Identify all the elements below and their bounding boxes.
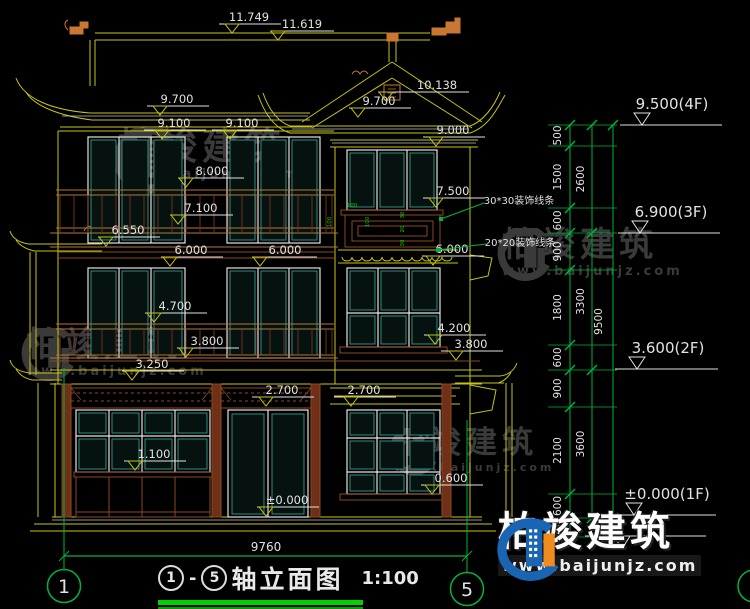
elevation-mark-value: 7.500 [437, 184, 470, 198]
dim-chain-value: 3300 [575, 288, 587, 315]
elevation-mark-triangle [344, 397, 358, 406]
dim-chain-value: 2100 [552, 437, 564, 464]
elevation-mark-value: 7.100 [185, 201, 218, 215]
elevation-mark-triangle [351, 108, 365, 117]
elevation-mark-value: 6.000 [436, 242, 469, 256]
elevation-mark-value: 1.100 [138, 447, 171, 461]
elevation-mark-triangle [449, 351, 463, 360]
floor-band-2f [50, 361, 482, 384]
elevation-mark-triangle [153, 106, 167, 115]
axis-bubble-end: 5 [201, 565, 227, 591]
dim-chain-value: 500 [552, 125, 564, 145]
elevation-mark-value: 9.000 [437, 123, 470, 137]
elevation-mark-value: 9.700 [161, 92, 194, 106]
dim-chain-value: 2600 [575, 166, 587, 193]
callout-leader [441, 203, 484, 219]
elevation-mark-value: 0.600 [435, 471, 468, 485]
grid-bubble-1-label: 1 [58, 576, 70, 598]
elevation-mark-value: 10.138 [417, 78, 457, 92]
title-block: 1 - 5 轴立面图 1:100 [158, 560, 419, 609]
elevation-mark-triangle [225, 24, 239, 33]
roof-ridge [95, 33, 430, 40]
level-value: 6.900(3F) [635, 203, 708, 221]
level-triangle [634, 113, 650, 125]
window-lower-panels [76, 477, 210, 517]
callout-label: 30*30装饰线条 [484, 194, 554, 207]
dimension-chains: 5001500600900180060090021006004502600330… [548, 120, 618, 542]
elevation-mark-triangle [271, 31, 285, 40]
title-underline [158, 600, 363, 605]
drawing-scale: 1:100 [362, 568, 419, 589]
grid-bubble-5-label: 5 [461, 579, 473, 601]
level-triangle [632, 221, 648, 233]
axis-bubble-start: 1 [158, 565, 184, 591]
gable-window-sill [341, 210, 443, 215]
level-value: 9.500(4F) [636, 95, 709, 113]
panel-dim-value: 30 [400, 211, 406, 218]
floor-level-markers: 9.500(4F)6.900(3F)3.600(2F)±0.000(1F) [612, 95, 722, 515]
elevation-mark-value: 3.250 [136, 357, 169, 371]
overall-dimension: 9760 [59, 540, 472, 562]
elevation-mark-value: 9.700 [363, 94, 396, 108]
elevation-mark-value: 6.000 [269, 243, 302, 257]
door-leaf-left [232, 414, 264, 514]
drawing-title-text: 轴立面图 [231, 560, 343, 596]
axis-separator: - [189, 568, 196, 589]
elevation-mark-value: 2.700 [266, 383, 299, 397]
gable-finial [387, 33, 398, 41]
level-triangle [629, 357, 645, 369]
callout-leader-dot [439, 217, 443, 221]
elevation-mark-value: 11.619 [282, 17, 322, 31]
callout-leader-dot [436, 248, 440, 252]
dim-chain-value: 9500 [593, 308, 605, 335]
level-value: 3.600(2F) [632, 339, 705, 357]
porch-eave-right [455, 363, 517, 383]
elevation-mark-value: 9.100 [158, 116, 191, 130]
panel-dim-value: 100 [347, 203, 358, 209]
elevation-mark-value: 2.700 [348, 383, 381, 397]
company-logo: 柏竣建筑 www.baijunjz.com [492, 512, 701, 576]
tile-scallops [342, 257, 452, 261]
elevation-mark-value: 11.749 [229, 10, 269, 24]
dim-chain-value: 1500 [552, 164, 564, 191]
panel-dim-value: 100 [365, 216, 371, 227]
level-value: ±0.000(1F) [624, 485, 709, 503]
panel-dim-value: 20 [400, 225, 406, 232]
dim-chain-value: 1800 [552, 294, 564, 321]
ridge-ornament-right [432, 28, 446, 35]
dim-chain-value: 3600 [575, 431, 587, 458]
decorative-trim-panel [341, 210, 443, 247]
elevation-mark-value: 9.100 [226, 116, 259, 130]
grid-bubble-partial [738, 570, 750, 602]
elevation-mark-value: 6.550 [112, 223, 145, 237]
elevation-mark-value: ±0.000 [266, 493, 309, 507]
panel-dim-value: 100 [327, 216, 333, 227]
overall-dim-label: 9760 [251, 540, 282, 554]
dim-chain-value: 600 [552, 347, 564, 367]
callout-label: 20*20装饰线条 [485, 236, 555, 249]
dim-chain-value: 600 [552, 210, 564, 230]
elevation-mark-value: 6.000 [175, 243, 208, 257]
elevation-mark-triangle [429, 137, 443, 146]
panel-dim-value: 30 [400, 239, 406, 246]
elevation-mark-value: 4.200 [438, 321, 471, 335]
company-logo-icon [492, 512, 564, 596]
elevation-mark-triangle [125, 371, 139, 380]
cad-canvas: 柏竣建筑 www.baijunjz.com 柏竣建筑 www.baijunjz.… [0, 0, 750, 609]
elevation-mark-value: 8.000 [196, 164, 229, 178]
elevation-mark-value: 3.800 [455, 337, 488, 351]
elevation-mark-value: 3.800 [191, 334, 224, 348]
dim-chain-value: 900 [552, 378, 564, 398]
elevation-mark-value: 4.700 [159, 299, 192, 313]
